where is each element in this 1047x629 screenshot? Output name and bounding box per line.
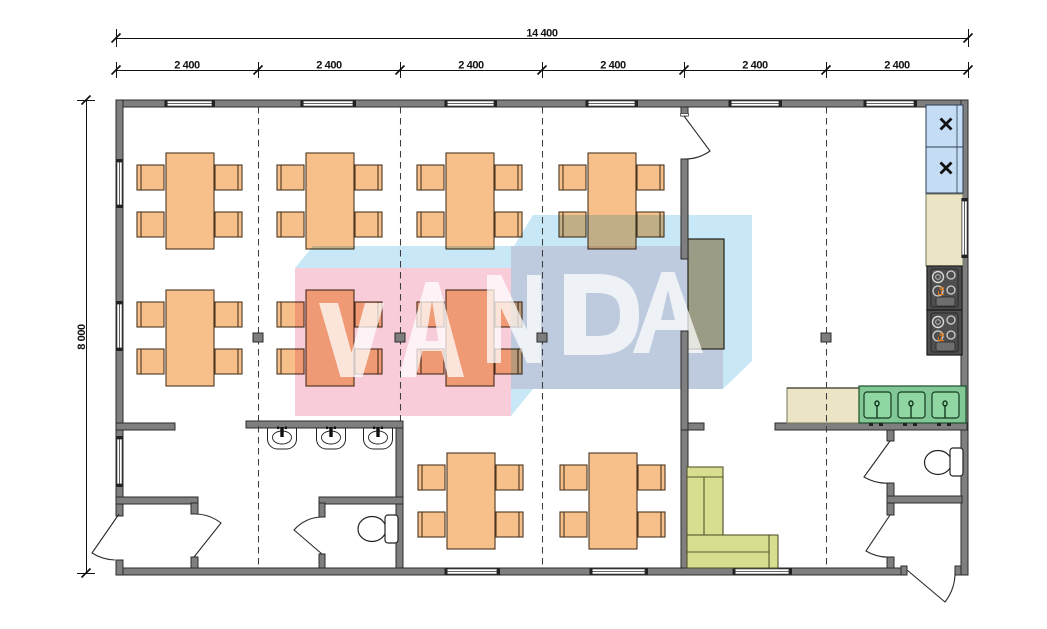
svg-text:2 400: 2 400 — [174, 60, 200, 72]
svg-text:2 400: 2 400 — [884, 60, 910, 72]
svg-text:2 400: 2 400 — [458, 60, 484, 72]
svg-text:2 400: 2 400 — [316, 60, 342, 72]
svg-text:8 000: 8 000 — [76, 324, 88, 350]
svg-text:Fe: Fe — [937, 332, 946, 342]
svg-text:2 400: 2 400 — [742, 60, 768, 72]
svg-text:2 400: 2 400 — [600, 60, 626, 72]
svg-text:Fe: Fe — [937, 286, 946, 296]
svg-text:14 400: 14 400 — [526, 28, 558, 40]
